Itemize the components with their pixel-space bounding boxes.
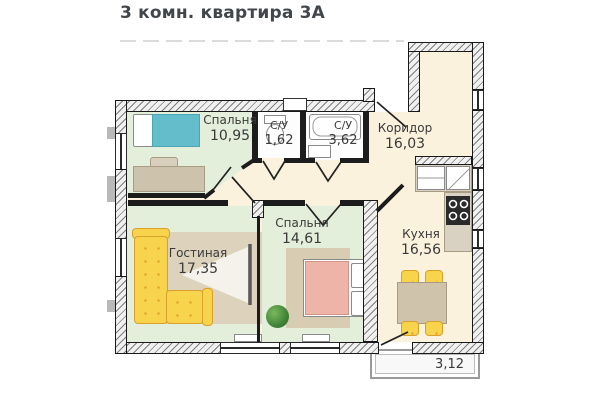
wall-bottom <box>412 342 484 354</box>
wall-right <box>472 110 484 168</box>
dining-chair <box>401 321 419 336</box>
wall-right <box>472 248 484 354</box>
wall-bottom <box>339 342 379 354</box>
wall-bottom <box>115 342 222 354</box>
window-bedroom2 <box>290 342 340 354</box>
window-living-room <box>220 342 280 354</box>
wall-corridor-bottom <box>258 200 305 206</box>
double-bed-blanket <box>305 261 349 315</box>
bedroom2-label: Спальня 14,61 <box>262 216 342 249</box>
wall-entrance-pier <box>363 88 375 102</box>
page-title: 3 комн. квартира 3А <box>120 3 325 23</box>
desk <box>133 166 205 192</box>
wall-bathroom1-bathroom2 <box>300 112 306 160</box>
window-bedroom1 <box>115 133 127 170</box>
wall-living-top <box>128 200 228 206</box>
plant <box>266 305 289 328</box>
stove <box>446 196 470 225</box>
wall-bathroom1-bottom <box>252 158 262 163</box>
bedroom1-label: Спальня 10,95 <box>192 113 268 146</box>
window-living-room-left <box>115 238 127 277</box>
balcony-area-label: 3,12 <box>435 357 464 372</box>
wall-bedroom1-bottom <box>128 193 205 198</box>
kitchen-label: Кухня 16,56 <box>392 227 450 260</box>
wall-living-bedroom2 <box>257 216 260 342</box>
window-right <box>472 230 484 248</box>
sofa-armrest <box>202 288 213 326</box>
dining-chair <box>425 321 443 336</box>
radiator <box>302 334 330 342</box>
neighbor-wall-stub <box>107 176 115 202</box>
wall-bathrooms-bottom <box>284 158 315 163</box>
wall-bathroom2-bottom <box>340 158 369 163</box>
neighbor-wall-stub <box>107 300 115 312</box>
wall-bedroom2-top <box>340 200 363 206</box>
wall-left <box>115 100 127 134</box>
wall-left <box>115 276 127 354</box>
wall-top <box>115 100 375 112</box>
sofa-horizontal-section <box>166 290 204 324</box>
bathroom2-label: С/У 3,62 <box>320 119 366 149</box>
window-right <box>472 168 484 190</box>
neighbor-wall-stub <box>107 127 115 139</box>
living-room-label: Гостиная 17,35 <box>155 246 241 279</box>
floor-plan-page: 3 комн. квартира 3А 3,12 <box>0 0 600 400</box>
wall-left <box>115 169 127 239</box>
wall-kitchen-top <box>415 156 472 165</box>
vent-shaft <box>283 98 307 111</box>
wall-right <box>472 190 484 230</box>
wall-bedroom2-kitchen <box>363 200 378 342</box>
kitchen-sink <box>417 166 445 190</box>
wall-right <box>472 42 484 90</box>
corridor-label: Коридор 16,03 <box>365 121 445 154</box>
kitchen-corner-unit <box>446 166 470 190</box>
wall-tower-left <box>408 42 420 112</box>
dining-table <box>397 282 447 324</box>
bed-single-pillow <box>133 114 153 147</box>
window-right <box>472 90 484 110</box>
bathroom1-label: С/У 1,62 <box>258 119 300 149</box>
